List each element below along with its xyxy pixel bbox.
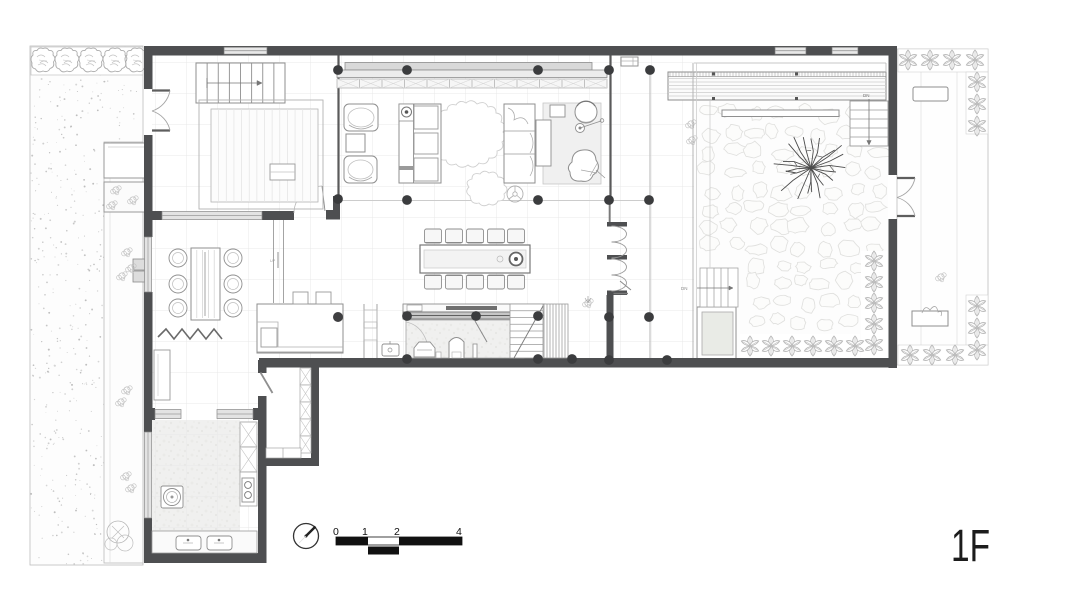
svg-text:0: 0: [333, 526, 339, 538]
svg-text:DN: DN: [681, 286, 688, 291]
svg-text:UP: UP: [270, 259, 276, 263]
svg-text:4: 4: [456, 526, 462, 538]
svg-text:1F: 1F: [951, 520, 990, 571]
svg-text:1: 1: [362, 526, 368, 538]
svg-text:DN: DN: [863, 93, 870, 98]
svg-text:2: 2: [394, 526, 400, 538]
